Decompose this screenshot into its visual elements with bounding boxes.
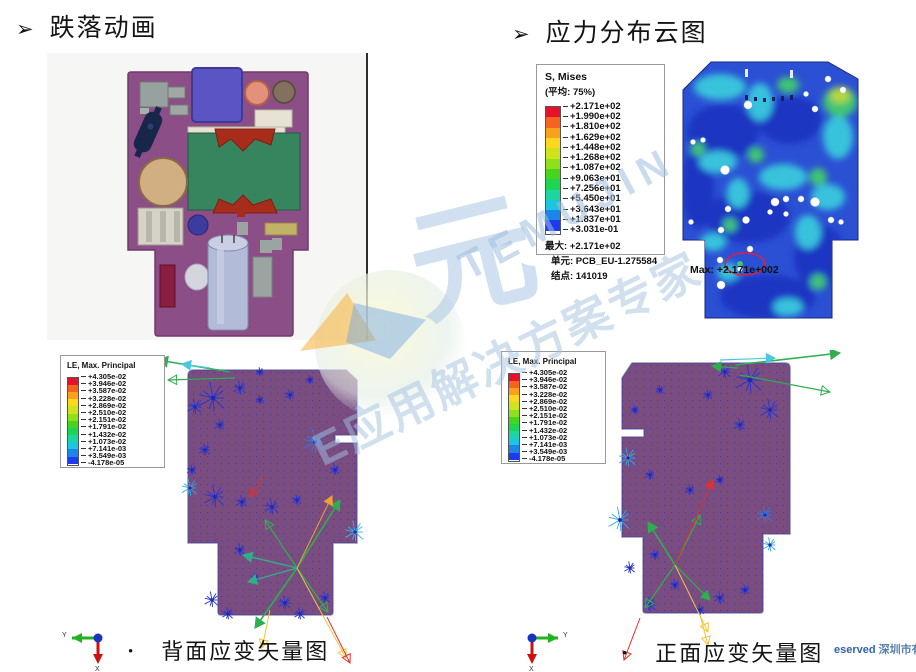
pcb-3d-render [47, 53, 368, 340]
legend-colorbar: +4.305e-02+3.946e-02+3.587e-02+3.228e-02… [67, 373, 160, 466]
copyright-cn: 深圳市有限 [879, 644, 916, 656]
strain-vector-plot-front [600, 350, 850, 672]
legend-title: S, Mises [545, 71, 659, 83]
stress-contour-plot [668, 57, 870, 330]
presentation-slide: ➢跌落动画 ➢应力分布云图 [0, 0, 916, 672]
bullet-dot: • [128, 644, 135, 660]
legend-node-line: 结点: 141019 [551, 268, 659, 282]
copyright-en: eserved [834, 644, 879, 656]
caption-front-strain: •正面应变矢量图 [622, 636, 823, 668]
watermark-character: 元 [388, 146, 552, 351]
caption-back-strain: •背面应变矢量图 [128, 634, 329, 666]
x-axis-label: X [95, 666, 100, 672]
strain-legend-front: LE, Max. Principal +4.305e-02+3.946e-02+… [501, 351, 606, 464]
section-title-stress-contour: ➢应力分布云图 [512, 13, 708, 49]
legend-subtitle: (平均: 75%) [545, 84, 659, 98]
legend-colorbar: +2.171e+02+1.990e+02+1.810e+02+1.629e+02… [545, 101, 659, 235]
legend-title: LE, Max. Principal [67, 361, 160, 370]
copyright-note: eserved 深圳市有限 [834, 641, 916, 657]
section-title-drop-animation: ➢跌落动画 [16, 8, 158, 44]
title-text: 跌落动画 [50, 15, 158, 42]
strain-vector-plot-back [150, 350, 380, 672]
bullet-dot: • [622, 646, 629, 662]
caption-text: 正面应变矢量图 [655, 641, 823, 666]
arrow-bullet-icon: ➢ [512, 22, 532, 46]
legend-element-line: 单元: PCB_EU-1.275584 [551, 253, 659, 267]
legend-colorbar: +4.305e-02+3.946e-02+3.587e-02+3.228e-02… [508, 369, 601, 462]
title-text: 应力分布云图 [546, 20, 708, 47]
strain-legend-back: LE, Max. Principal +4.305e-02+3.946e-02+… [60, 355, 165, 468]
arrow-bullet-icon: ➢ [16, 17, 36, 41]
drop-animation-frame [47, 53, 368, 340]
legend-max-line: 最大: +2.171e+02 [545, 238, 659, 252]
max-annotation: Max: +2.171e+002 [690, 264, 779, 276]
stress-legend: S, Mises (平均: 75%) +2.171e+02+1.990e+02+… [536, 64, 665, 255]
caption-text: 背面应变矢量图 [161, 639, 329, 664]
y-axis-label: Y [62, 632, 67, 639]
legend-title: LE, Max. Principal [508, 357, 601, 366]
axis-triad-icon: Y X [58, 622, 114, 672]
axis-triad-icon: Y X [518, 622, 574, 672]
x-axis-label: X [529, 666, 534, 672]
y-axis-label: Y [563, 632, 568, 639]
